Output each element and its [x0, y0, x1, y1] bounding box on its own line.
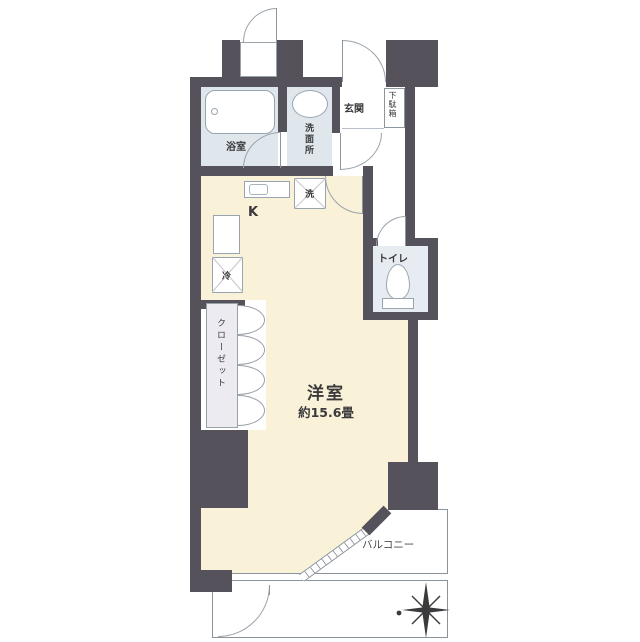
- entrance-door-leaf: [342, 40, 343, 82]
- washroom-door-leaf: [340, 133, 341, 170]
- balcony-partition-leaf: [269, 585, 270, 595]
- closet-label: クローゼット: [215, 318, 224, 390]
- sink-icon: [292, 90, 328, 118]
- wall-hall-right: [405, 87, 415, 238]
- balcony-label: バルコニー: [362, 537, 414, 552]
- closet-door-scallop: [238, 305, 265, 335]
- closet-door-scallop: [238, 395, 265, 426]
- toilet-label: トイレ: [378, 250, 408, 265]
- bathtub-drain: [211, 108, 218, 115]
- entrance-door-arc: [342, 40, 386, 82]
- refrigerator-label: 冷: [222, 269, 231, 282]
- entrance-label: 玄関: [344, 100, 364, 115]
- main-room-door-leaf: [362, 176, 363, 214]
- kitchen-label: K: [248, 205, 258, 220]
- washroom-door-arc: [340, 133, 382, 170]
- wall-toilet-right: [428, 238, 438, 320]
- wall-room-right: [408, 320, 418, 462]
- kitchen-sink-icon: [249, 184, 268, 195]
- toilet-tank-icon: [382, 298, 414, 309]
- meter-box: [240, 42, 277, 77]
- wall-hall-divider: [363, 166, 373, 320]
- genkan-step-line: [342, 128, 384, 129]
- wall-left: [190, 77, 201, 592]
- wall-block-top-right: [386, 40, 438, 77]
- closet-folding-door: [238, 305, 266, 427]
- wall-toilet-bottom: [363, 312, 438, 320]
- wall-bath-wash-divider: [278, 87, 287, 132]
- washing-machine-label: 洗: [305, 187, 314, 200]
- wall-corner-block: [388, 462, 438, 510]
- washroom-label: 洗面所: [303, 123, 312, 156]
- wall-stub-mb-right: [277, 40, 303, 77]
- meter-box-door-leaf: [276, 8, 277, 42]
- wall-stub-mb-left: [222, 40, 240, 77]
- wall-pillar: [201, 430, 248, 508]
- bathroom-label: 浴室: [226, 138, 246, 153]
- shoe-cabinet-label: 下駄箱: [388, 91, 396, 118]
- wall-washroom-right: [332, 87, 340, 133]
- closet-door-scallop: [238, 365, 265, 395]
- wall-top-left: [190, 77, 342, 87]
- compass-icon: [396, 578, 460, 642]
- floor-plan: 浴室 洗面所 玄関 下駄箱 トイレ K 冷 洗 クローゼット 洋室 約15.6畳…: [0, 0, 640, 640]
- toilet-door-leaf: [405, 216, 406, 246]
- toilet-door-arc: [376, 216, 406, 246]
- toilet-bowl-icon: [386, 264, 410, 300]
- closet-door-scallop: [238, 335, 265, 365]
- kitchen-side-counter: [213, 215, 240, 254]
- balcony-top-edge: [438, 509, 448, 510]
- main-room-name-label: 洋室: [276, 379, 376, 404]
- meter-box-door-arc: [243, 8, 277, 42]
- main-room-size-label: 約15.6畳: [276, 402, 376, 421]
- balcony-right-edge: [447, 510, 448, 581]
- bathroom-door-leaf: [280, 132, 281, 168]
- wall-top-right: [386, 77, 438, 87]
